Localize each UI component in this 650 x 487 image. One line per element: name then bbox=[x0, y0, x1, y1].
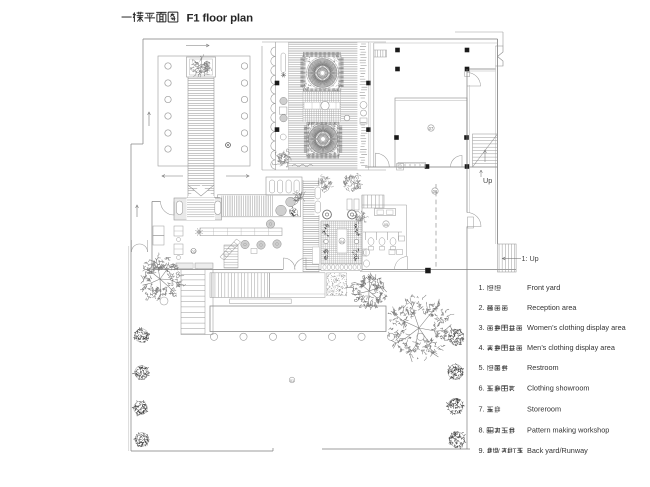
svg-text:1: Up: 1: Up bbox=[522, 254, 539, 263]
svg-text:Front yard: Front yard bbox=[527, 283, 560, 292]
svg-text:Restroom: Restroom bbox=[527, 363, 559, 372]
svg-text:Reception area: Reception area bbox=[527, 303, 577, 312]
svg-text:/: / bbox=[498, 448, 500, 455]
svg-text:5.: 5. bbox=[479, 363, 485, 372]
svg-text:Women’s clothing display area: Women’s clothing display area bbox=[527, 323, 627, 332]
svg-text:T: T bbox=[513, 448, 517, 455]
svg-text:Back yard/Runway: Back yard/Runway bbox=[527, 446, 588, 455]
svg-text:9.: 9. bbox=[479, 446, 485, 455]
svg-text:Clothing showroom: Clothing showroom bbox=[527, 384, 589, 393]
svg-text:8.: 8. bbox=[479, 426, 485, 435]
svg-text:04: 04 bbox=[340, 240, 344, 244]
svg-text:F1 floor plan: F1 floor plan bbox=[187, 13, 254, 25]
svg-text:06: 06 bbox=[433, 189, 438, 194]
svg-text:Men’s clothing display area: Men’s clothing display area bbox=[527, 343, 616, 352]
svg-text:01: 01 bbox=[290, 379, 294, 383]
svg-text:07: 07 bbox=[429, 126, 434, 131]
svg-text:1.: 1. bbox=[479, 283, 485, 292]
svg-text:Storeroom: Storeroom bbox=[527, 405, 561, 414]
svg-text:7.: 7. bbox=[479, 405, 485, 414]
svg-text:3.: 3. bbox=[479, 323, 485, 332]
svg-text:Up: Up bbox=[483, 176, 492, 185]
svg-text:02: 02 bbox=[191, 250, 195, 254]
svg-text:6.: 6. bbox=[479, 384, 485, 393]
svg-text:4.: 4. bbox=[479, 343, 485, 352]
svg-text:Pattern making workshop: Pattern making workshop bbox=[527, 426, 609, 435]
svg-text:05: 05 bbox=[384, 223, 388, 227]
svg-text:2.: 2. bbox=[479, 303, 485, 312]
